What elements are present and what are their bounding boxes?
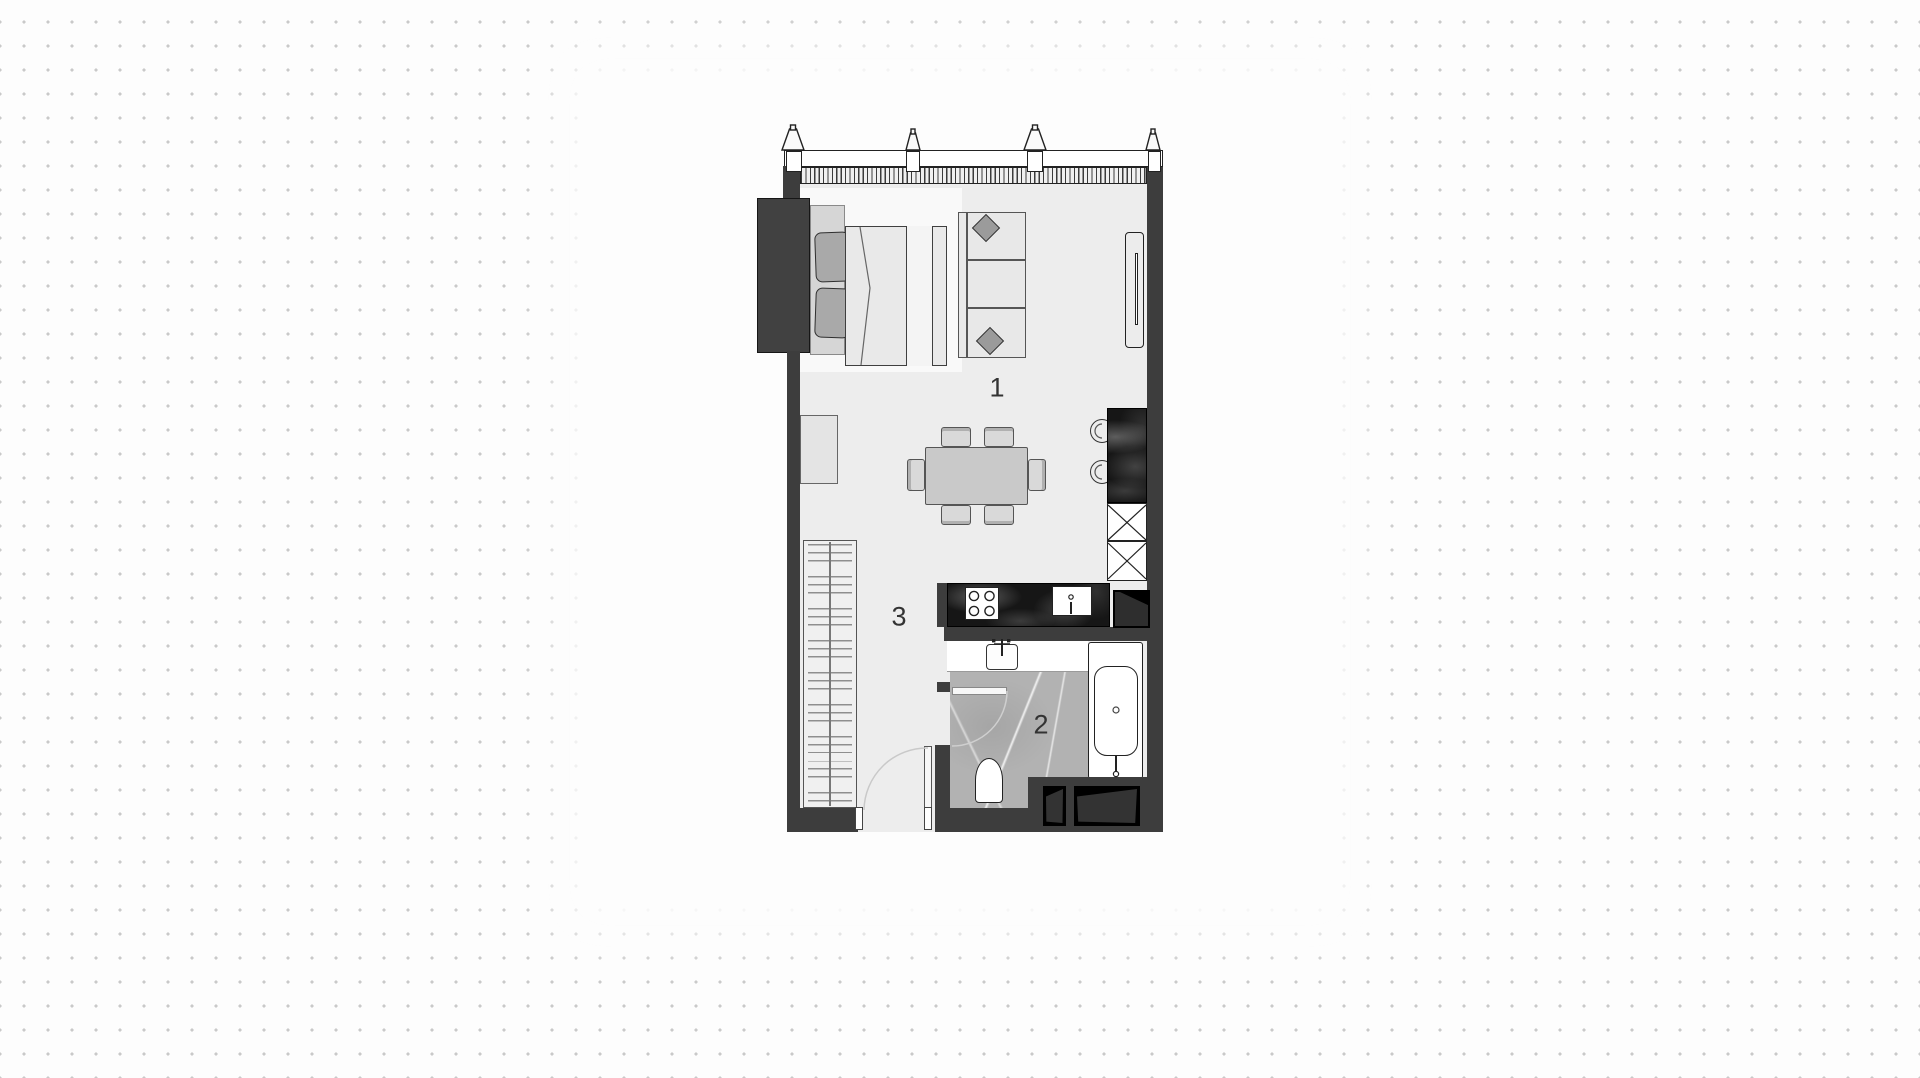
side-cabinet xyxy=(800,415,838,484)
dining-chair xyxy=(941,427,971,447)
entry-door-leaf xyxy=(924,746,932,810)
toilet xyxy=(975,758,1003,803)
tall-cabinet xyxy=(1107,541,1147,581)
dining-chair xyxy=(984,505,1014,525)
bathtub-basin xyxy=(1094,666,1138,756)
sofa-seat-divider xyxy=(966,307,1026,309)
wall xyxy=(935,745,950,808)
room-label-bathroom: 2 xyxy=(1033,712,1048,739)
bed-blanket-fold xyxy=(906,226,933,366)
wardrobe-rail xyxy=(829,542,831,806)
floor-plan: 1 2 3 xyxy=(757,123,1167,835)
wall xyxy=(937,682,950,692)
bathroom-door-leaf xyxy=(952,687,1007,695)
stove-cooktop xyxy=(965,587,999,620)
dining-chair xyxy=(984,427,1014,447)
wall xyxy=(787,808,858,832)
balcony-marker-icon xyxy=(782,125,1160,150)
structural-column xyxy=(757,198,810,353)
dining-table xyxy=(925,447,1028,505)
tv-screen xyxy=(1135,253,1138,325)
window-mullion xyxy=(906,151,920,172)
service-shaft xyxy=(1074,786,1140,826)
kitchen-sink xyxy=(1052,586,1092,616)
kitchen-bar-counter xyxy=(1107,408,1147,503)
room-label-hallway: 3 xyxy=(891,604,906,631)
window-mullion xyxy=(1027,151,1043,172)
service-shaft xyxy=(1043,786,1066,826)
window-mullion xyxy=(1148,151,1161,172)
wall xyxy=(944,627,1147,641)
dining-chair xyxy=(941,505,971,525)
sofa-backrest-line xyxy=(966,212,968,358)
wall xyxy=(787,351,800,808)
wall xyxy=(1147,167,1163,808)
door-frame-post xyxy=(924,807,932,830)
window-glazing-strip xyxy=(800,167,1147,184)
room-label-living: 1 xyxy=(989,375,1004,402)
window-mullion xyxy=(786,151,802,172)
service-shaft xyxy=(1113,590,1150,628)
balcony-edge xyxy=(784,150,1163,167)
wall xyxy=(937,583,947,627)
washbasin xyxy=(986,644,1018,670)
tall-cabinet xyxy=(1107,503,1147,541)
door-frame-post xyxy=(855,807,863,830)
sofa-seat-divider xyxy=(966,259,1026,261)
dining-chair xyxy=(1028,459,1046,491)
dining-chair xyxy=(907,459,925,491)
